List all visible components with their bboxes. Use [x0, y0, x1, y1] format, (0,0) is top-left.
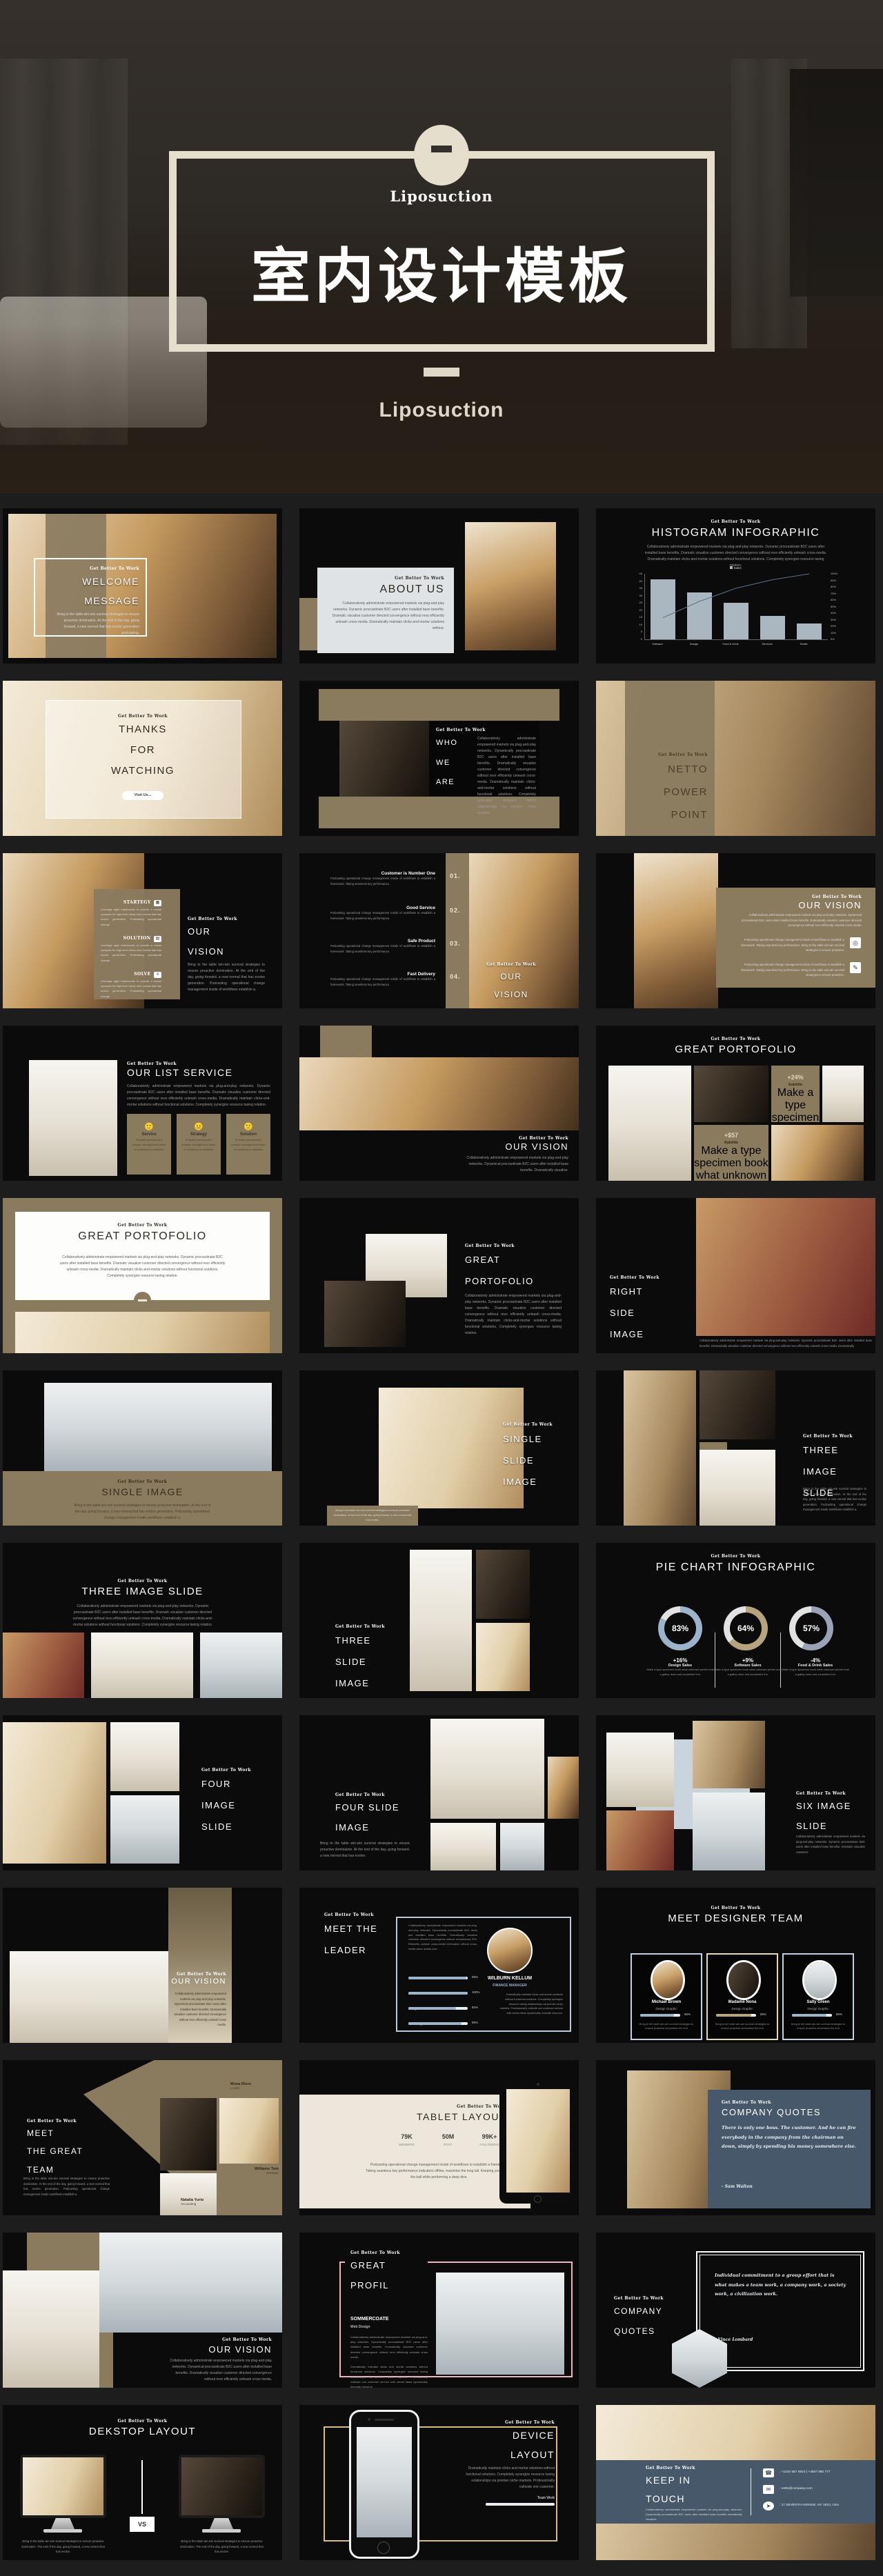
slide-dekstop-layout[interactable]: Get Better To Work DEKSTOP LAYOUT VS Bri…	[3, 2405, 282, 2560]
slide-tagline: Get Better To Work	[382, 2104, 506, 2109]
photo-modern-kitchen	[15, 1312, 270, 1353]
slide-meet-designer-team[interactable]: Get Better To Work MEET DESIGNER TEAM Mi…	[596, 1888, 875, 2043]
monitor-right	[179, 2455, 265, 2518]
monitor-right-stand	[210, 2518, 233, 2529]
slide-tagline: Get Better To Work	[44, 566, 139, 571]
slide-title: NETTO POWER POINT	[639, 758, 708, 826]
slide-keep-in-touch[interactable]: Get Better To Work KEEP IN TOUCH Collabo…	[596, 2405, 875, 2560]
slide-great-portofolio-panel[interactable]: Get Better To Work GREAT PORTOFOLIO Coll…	[3, 1198, 282, 1353]
slide-who-we-are[interactable]: Get Better To Work WHO WE ARE Collaborat…	[299, 681, 579, 836]
stat-text: Make a type specimen book what unknown p…	[781, 1668, 850, 1677]
phone-home-button	[377, 2542, 390, 2554]
x-axis-label: Food & Drink	[713, 642, 748, 646]
accent-band-top	[319, 689, 559, 721]
compass-icon: ◎	[850, 937, 861, 948]
sad-face-icon: 🙁	[226, 1122, 270, 1131]
member-name: Madame Nona	[708, 2000, 777, 2004]
y-axis-tick: 25	[634, 601, 642, 604]
slide-body: Dramatically maintain clicks and mortar …	[465, 2466, 555, 2490]
member-bar	[716, 2014, 751, 2017]
panel-row-2: Podcasting operational change management…	[734, 962, 844, 978]
item-text: Podcasting operational change management…	[330, 910, 435, 921]
y2-axis-tick: 50%	[831, 605, 842, 608]
slide-body: Collaboratively administrate empowered m…	[796, 1834, 865, 1855]
x-axis-label: Software	[639, 642, 675, 646]
slide-title: OUR VISION	[734, 900, 862, 911]
member-label-1: Mona Riero Leader	[230, 2082, 279, 2090]
photo-bookshelves	[99, 2233, 282, 2333]
slide-tagline: Get Better To Work	[3, 2419, 282, 2424]
slide-right-side-image[interactable]: Get Better To Work RIGHT SIDE IMAGE Coll…	[596, 1198, 875, 1353]
legend-swatch	[730, 566, 733, 569]
photo-chandelier-ceiling	[596, 2405, 875, 2460]
solve-icon: ≡	[154, 972, 161, 978]
y-axis-tick: 30	[634, 594, 642, 597]
skill-pct: 80%	[472, 2006, 478, 2009]
slide-body: Bring to the table win-win survival stra…	[23, 2176, 110, 2197]
stat-label: MEMBERS	[388, 2143, 426, 2146]
skill-bar	[408, 2007, 456, 2010]
slide-title: OUR LIST SERVICE	[127, 1067, 272, 1079]
slide-body: Collaboratively administrate empowered m…	[174, 1991, 226, 2028]
number-02: 02.	[450, 907, 461, 914]
card-text: Podcast operational if change management…	[127, 1137, 171, 1153]
slide-tagline: Get Better To Work	[480, 962, 542, 967]
slide-tagline: Get Better To Work	[796, 1791, 872, 1796]
slide-tagline: Get Better To Work	[201, 1768, 277, 1773]
slide-title: THREE SLIDE IMAGE	[335, 1630, 390, 1695]
slide-great-portofolio-collage[interactable]: Get Better To Work GREAT PORTOFOLIO +24%…	[596, 1026, 875, 1181]
slide-title: MEET THE GREAT TEAM	[27, 2124, 110, 2179]
slide-title: FOUR IMAGE SLIDE	[201, 1773, 264, 1838]
slide-title: TABLET LAYOUT	[382, 2111, 506, 2123]
slide-four-slide-image[interactable]: Get Better To Work FOUR SLIDE IMAGE Brin…	[299, 1715, 579, 1870]
slide-tagline: Get Better To Work	[639, 752, 708, 757]
y-axis-tick: 5	[634, 630, 642, 633]
cumulative-line	[645, 574, 828, 639]
slide-title: HISTOGRAM INFOGRAPHIC	[596, 526, 875, 539]
slide-title: MEET THE LEADER	[324, 1918, 400, 1961]
y-axis-tick: 0	[634, 637, 642, 641]
slide-three-slide-image[interactable]: Get Better To Work THREE SLIDE IMAGE	[299, 1543, 579, 1698]
photo-bedroom-window	[29, 1060, 117, 1176]
hero-ellipse-ornament	[414, 125, 469, 186]
member-role: Design Graphic	[784, 2007, 853, 2010]
slide-histogram-infographic[interactable]: Get Better To Work HISTOGRAM INFOGRAPHIC…	[596, 508, 875, 663]
slide-device-layout[interactable]: Get Better To Work DEVICE LAYOUT Dramati…	[299, 2405, 579, 2560]
photo-wood-wall	[693, 1721, 765, 1788]
member-bar	[640, 2014, 674, 2017]
photo-lounge	[694, 1066, 768, 1122]
slide-tagline: Get Better To Work	[174, 1972, 226, 1977]
mail-icon: ✉	[763, 2485, 774, 2494]
stat-value: +24%	[771, 1074, 820, 1081]
slide-tagline: Get Better To Work	[327, 576, 444, 581]
team-card-2: Madame Nona Design Graphic 88% Bring to …	[706, 1953, 778, 2040]
slide-tagline: Get Better To Work	[127, 1061, 265, 1066]
stat-value: 79K	[388, 2133, 426, 2140]
slide-tagline: Get Better To Work	[472, 2420, 555, 2425]
slide-body: Collaboratively administrate empowered m…	[741, 912, 862, 928]
photo-curtained-room	[110, 1795, 179, 1864]
pen-icon: ✎	[850, 962, 861, 973]
slide-body: Collaboratively administrate empowered m…	[477, 736, 536, 817]
profile-role: Web Design	[350, 2325, 433, 2329]
item-text: Podcasting operational change management…	[330, 876, 435, 886]
stat-box-2: +$57 Subtitle Make a type specimen book …	[694, 1125, 768, 1181]
member-text: Bring to the table win-win survival stra…	[713, 2022, 771, 2030]
slide-tagline: Get Better To Work	[596, 1906, 875, 1910]
photo-gallery	[548, 1757, 579, 1819]
slide-single-slide-image[interactable]: Get Better To Work SINGLE SLIDE IMAGE Br…	[299, 1370, 579, 1526]
slide-thumbnail-grid: Get Better To Work WELCOME MESSAGE Bring…	[0, 493, 883, 2576]
y2-axis-tick: 100%	[831, 572, 842, 575]
stat-text: Make a type specimen book what unknown p…	[646, 1668, 715, 1677]
phone-screen-photo	[357, 2427, 412, 2537]
stat-post: 50M POST	[429, 2133, 467, 2146]
slide-body: Collaboratively administrate empowered m…	[646, 2507, 742, 2522]
panel-item-startegy: STARTEGY ▦ Leverage agile frameworks to …	[101, 895, 161, 927]
slide-our-vision-panel[interactable]: Get Better To Work OUR VISION Collaborat…	[596, 853, 875, 1008]
slide-welcome-message[interactable]: Get Better To Work WELCOME MESSAGE Bring…	[3, 508, 282, 663]
team-card-3: Sally Green Design Graphic 86% Bring to …	[782, 1953, 854, 2040]
item-title: Fast Delivery	[330, 972, 435, 977]
skill-row-1: Team Work 98%	[408, 1970, 491, 1983]
photo-foyer	[634, 853, 718, 1008]
slide-meet-the-leader[interactable]: Get Better To Work MEET THE LEADER WILBU…	[299, 1888, 579, 2043]
slide-title: GREAT PROFIL	[350, 2256, 426, 2295]
slide-great-profil[interactable]: Get Better To Work GREAT PROFIL SOMMERCO…	[299, 2233, 579, 2388]
y2-axis-tick: 30%	[831, 618, 842, 621]
slide-body: Collaboratively administrate empowered m…	[700, 1338, 872, 1348]
skill-pct: 89%	[472, 2021, 478, 2024]
slide-body: Collaboratively administrate empowered m…	[458, 1155, 568, 1174]
slide-company-quotes-frame[interactable]: Get Better To Work COMPANY QUOTES Indivi…	[596, 2233, 875, 2388]
photo-glass-cabinet	[91, 1633, 193, 1698]
member-role: Leader	[230, 2086, 279, 2090]
slide-tagline: Get Better To Work	[175, 2337, 272, 2342]
slide-our-vision-shelves[interactable]: Get Better To Work OUR VISION Collaborat…	[3, 2233, 282, 2388]
photo-bathroom	[379, 1388, 524, 1508]
smiley-icon: 🙂	[127, 1122, 171, 1131]
slide-title: OUR VISION	[175, 2344, 272, 2355]
skill-pct: 98%	[472, 1975, 478, 1979]
hero-brand: Liposuction	[235, 188, 648, 205]
panel-row-1: Podcasting operational change management…	[734, 937, 844, 953]
slide-four-image[interactable]: Get Better To Work FOUR IMAGE SLIDE	[3, 1715, 282, 1870]
slide-our-vision-wide-photo[interactable]: Get Better To Work OUR VISION Collaborat…	[299, 1026, 579, 1181]
caption-right: Bring to the table win-win survival stra…	[179, 2539, 265, 2555]
slide-thanks-for-watching[interactable]: Get Better To Work THANKS FOR WATCHING V…	[3, 681, 282, 836]
slide-title: OUR VISION	[188, 922, 250, 961]
slide-title: PIE CHART INFOGRAPHIC	[596, 1561, 875, 1574]
solution-icon: ▤	[154, 936, 161, 942]
member-role: Manager	[230, 2171, 279, 2175]
photo-living-room	[339, 721, 429, 797]
slide-tagline: Get Better To Work	[3, 1479, 282, 1484]
slide-body: Bring to the table win-win survival stra…	[72, 1503, 213, 1521]
slide-title: THANKS FOR WATCHING	[46, 719, 240, 781]
donut-chart-1: 83%	[658, 1606, 702, 1650]
slide-title: SIX IMAGE SLIDE	[796, 1797, 869, 1836]
member-label-2: Williams Tom Manager	[230, 2167, 279, 2175]
item-label: STARTEGY	[123, 900, 151, 905]
slide-tagline: Get Better To Work	[614, 2296, 690, 2301]
stat-value: 50M	[429, 2133, 467, 2140]
slide-title: OUR VISION	[168, 1977, 226, 1986]
list-item-3: Safe Product Podcasting operational chan…	[330, 939, 435, 954]
photo-dark-kitchen	[476, 1550, 530, 1619]
slide-tagline: Get Better To Work	[188, 917, 270, 921]
photo-round-ceiling-lobby	[410, 1550, 472, 1691]
slide-three-image-centered[interactable]: Get Better To Work THREE IMAGE SLIDE Col…	[3, 1543, 282, 1698]
skill-label: Team Work	[472, 2496, 555, 2500]
circle-ornament	[134, 1292, 151, 1309]
photo-arch-hall	[430, 1823, 496, 1870]
photo-leather-sofa	[700, 1370, 775, 1439]
slide-tagline: Get Better To Work	[350, 2250, 426, 2255]
donut-chart-2: 64%	[724, 1606, 768, 1650]
photo-red-sofa-lounge	[696, 1198, 875, 1336]
y2-axis-tick: 10%	[831, 631, 842, 635]
slide-great-portofolio-photos[interactable]: Get Better To Work GREAT PORTOFOLIO Coll…	[299, 1198, 579, 1353]
legend-label: Sales	[734, 566, 742, 570]
item-label: SOLUTION	[123, 936, 151, 941]
slide-title: GREAT PORTOFOLIO	[465, 1249, 555, 1292]
slide-our-vision-strategy[interactable]: Get Better To Work OUR VISION Bring to t…	[3, 853, 282, 1008]
skill-bar	[408, 1977, 466, 1979]
profile-name: SOMMERCOATE	[350, 2317, 433, 2322]
slide-our-vision-numbered-list[interactable]: Customer is Number One Podcasting operat…	[299, 853, 579, 1008]
stat-column-3: -4% Food & Drink Sales Make a type speci…	[781, 1657, 850, 1677]
x-axis-label: Services	[749, 642, 785, 646]
skill-pct: 100%	[472, 1990, 480, 1994]
photo-grand-staircase	[608, 1066, 691, 1181]
photo-pink-room	[3, 1633, 84, 1698]
item-text: Podcasting operational change management…	[330, 943, 435, 954]
slide-title: SINGLE IMAGE	[3, 1486, 282, 1498]
bar-chart: 0510152025303540450%10%20%30%40%50%60%70…	[644, 574, 828, 640]
stat-column-1: +16% Design Sales Make a type specimen b…	[646, 1657, 715, 1677]
slide-three-image[interactable]: Get Better To Work THREE IMAGE SLIDE Bri…	[596, 1370, 875, 1526]
slide-title: FOUR SLIDE IMAGE	[335, 1798, 425, 1837]
member-portrait	[726, 1960, 761, 2000]
slide-tagline: Get Better To Work	[15, 1223, 270, 1228]
slide-tagline: Get Better To Work	[803, 1434, 872, 1439]
photo-sage-dining	[200, 1633, 282, 1698]
skill-bar	[486, 2503, 548, 2506]
panel-item-solution: SOLUTION ▤ Leverage agile frameworks to …	[101, 930, 161, 963]
slide-title: OUR VISION	[480, 968, 542, 1004]
slide-meet-the-great-team[interactable]: Mona Riero Leader Williams Tom Manager N…	[3, 2060, 282, 2215]
slide-title: GREAT PORTOFOLIO	[596, 1044, 875, 1056]
panel-item-solve: SOLVE ≡ Leverage agile frameworks to pro…	[101, 966, 161, 999]
donut-chart-3: 57%	[789, 1606, 833, 1650]
skill-row-2: Leaders Team 100%	[408, 1986, 491, 1998]
slide-title: DEVICE LAYOUT	[472, 2426, 555, 2464]
slide-title: ABOUT US	[327, 583, 444, 596]
solution-card: 🙁 Solution Podcast operational if change…	[226, 1114, 270, 1175]
photo-cove-ceiling	[476, 1623, 530, 1691]
photo-sage-dining-2	[693, 1793, 765, 1870]
slide-tagline: Get Better To Work	[437, 1136, 568, 1141]
member-role: Design Graphic	[708, 2007, 777, 2010]
quote-text: There is only one boss. The customer. An…	[722, 2124, 857, 2152]
donut-value: 83%	[664, 1613, 696, 1644]
photo-dining	[822, 1066, 864, 1122]
monitor-left	[20, 2455, 106, 2518]
quote-author: - Sam Walton	[722, 2183, 857, 2192]
slide-tagline: Get Better To Work	[465, 1244, 562, 1248]
slide-single-image[interactable]: Get Better To Work SINGLE IMAGE Bring to…	[3, 1370, 282, 1526]
skill-bar	[408, 2022, 462, 2025]
contact-email: : netto@company.com	[780, 2487, 869, 2490]
photo-bay-window	[44, 1383, 272, 1471]
tablet-camera	[537, 2083, 539, 2086]
hero-photo-tv-wall	[790, 69, 883, 297]
tablet-home-button	[534, 2195, 542, 2203]
skill-row-4: Marketing 89%	[408, 2016, 491, 2028]
item-title: Safe Product	[330, 939, 435, 943]
member-portrait	[651, 1960, 685, 2000]
contact-divider	[751, 2468, 751, 2515]
slide-body: Collaboratively administrate empowered m…	[644, 544, 827, 569]
quote-text: Individual commitment to a group effort …	[715, 2271, 847, 2299]
slide-body: Podcasting operational change management…	[365, 2162, 513, 2181]
slide-tagline: Get Better To Work	[596, 519, 875, 524]
y-axis-tick: 45	[634, 572, 642, 575]
slide-body: Bring to the table win-win survival stra…	[188, 962, 265, 993]
list-item-1: Customer is Number One Podcasting operat…	[330, 871, 435, 886]
member-text: Bring to the table win-win survival stra…	[637, 2022, 695, 2030]
stat-column-2: +9% Software Sales Make a type specimen …	[713, 1657, 782, 1677]
y2-axis-tick: 40%	[831, 611, 842, 615]
phone-camera	[368, 2418, 370, 2421]
member-label-3: Natalia Yurio Accounting	[181, 2198, 229, 2206]
photo-display-cabinets	[299, 1057, 579, 1130]
member-name: Sally Green	[784, 2000, 853, 2004]
visit-us-button: Visit Us...	[122, 791, 163, 800]
member-role: Design Graphic	[632, 2007, 701, 2010]
photo-sage-hallway	[436, 2273, 564, 2375]
slide-body: Collaboratively administrate empowered m…	[330, 601, 444, 632]
slide-body: Collaboratively administrate empowered m…	[350, 2335, 428, 2388]
slide-tablet-layout[interactable]: Get Better To Work TABLET LAYOUT 79K MEM…	[299, 2060, 579, 2215]
phone-speaker	[375, 2419, 394, 2421]
phone-icon: ☎	[763, 2468, 774, 2477]
slide-title: WELCOME MESSAGE	[44, 572, 139, 610]
slide-title: RIGHT SIDE IMAGE	[610, 1281, 679, 1346]
item-title: Good Service	[330, 906, 435, 910]
slide-our-list-service[interactable]: Get Better To Work OUR LIST SERVICE Coll…	[3, 1026, 282, 1181]
item-text: Leverage agile frameworks to provide a r…	[101, 907, 161, 927]
number-04: 04.	[450, 973, 461, 980]
slide-about-us[interactable]: Get Better To Work ABOUT US Collaborativ…	[299, 508, 579, 663]
slide-title: WHO WE ARE	[436, 733, 477, 792]
x-axis-label: Design	[676, 642, 712, 646]
slide-title: THREE IMAGE SLIDE	[3, 1586, 282, 1598]
y2-axis-tick: 20%	[831, 624, 842, 628]
slide-tagline: Get Better To Work	[646, 2466, 742, 2470]
x-axis-label: Textile	[786, 642, 822, 646]
caption-left: Bring to the table win-win survival stra…	[20, 2539, 106, 2555]
slide-company-quotes-photo[interactable]: Get Better To Work COMPANY QUOTES There …	[596, 2060, 875, 2215]
skill-row-3: Design 80%	[408, 2001, 491, 2013]
hero-subtitle: Liposuction	[235, 399, 648, 422]
stat-box-1: +24% Subtitle Make a type specimen book …	[771, 1066, 820, 1122]
contact-address: : 17 SEVENTH AVENUE, NY 1910, USA	[780, 2504, 873, 2507]
y-axis-tick: 35	[634, 586, 642, 590]
caption-text: Bring to the table win-win survival stra…	[327, 1506, 418, 1525]
photo-lattice-wall	[160, 2098, 217, 2170]
slide-tagline: Get Better To Work	[610, 1275, 693, 1280]
member-pct: 86%	[836, 2013, 842, 2016]
y-axis-tick: 40	[634, 579, 642, 583]
photo-staircase	[700, 1450, 775, 1526]
stat-delta: +16%	[646, 1657, 715, 1664]
divider-line	[141, 2460, 143, 2514]
monitor-left-stand	[51, 2518, 75, 2529]
slide-tagline: Get Better To Work	[335, 1624, 404, 1629]
tablet-device	[499, 2079, 577, 2204]
item-text: Leverage agile frameworks to provide a r…	[101, 979, 161, 999]
leader-body: Collaboratively administrate empowered m…	[408, 1924, 477, 1952]
stat-text: Make a type specimen book what unknown p…	[713, 1668, 782, 1677]
vs-badge: VS	[130, 2517, 155, 2532]
stat-members: 79K MEMBERS	[388, 2133, 426, 2146]
y2-axis-tick: 80%	[831, 585, 842, 588]
caption-box: Bring to the table win-win survival stra…	[327, 1506, 418, 1526]
photo-fireplace-room	[430, 1719, 544, 1819]
slide-six-image[interactable]: Get Better To Work SIX IMAGE SLIDE Colla…	[596, 1715, 875, 1870]
photo-bath	[500, 1823, 544, 1870]
y2-axis-tick: 0%	[831, 637, 842, 641]
slide-title: GREAT PORTOFOLIO	[15, 1230, 270, 1243]
photo-warm-hallway	[219, 2098, 279, 2164]
slide-our-vision-gradient[interactable]: Get Better To Work OUR VISION Collaborat…	[3, 1888, 282, 2043]
photo-dining-room-2	[596, 2524, 875, 2560]
slide-body: Collaboratively administrate empowered m…	[70, 1604, 215, 1628]
leader-body-2: Dramatically maintain clicks and mortar …	[499, 1993, 563, 2016]
y-axis-tick: 20	[634, 608, 642, 612]
slide-body: Collaboratively administrate empowered m…	[127, 1084, 270, 1108]
photo-white-kitchen	[110, 1722, 179, 1791]
slide-title: DEKSTOP LAYOUT	[3, 2426, 282, 2438]
number-03: 03.	[450, 940, 461, 947]
y2-axis-tick: 70%	[831, 592, 842, 595]
slide-pie-chart-infographic[interactable]: Get Better To Work PIE CHART INFOGRAPHIC…	[596, 1543, 875, 1698]
slide-tagline: Get Better To Work	[27, 2119, 110, 2124]
photo-armchair	[606, 1733, 674, 1807]
monitor-left-base	[43, 2529, 82, 2533]
member-portrait	[802, 1960, 837, 2000]
slide-tagline: Get Better To Work	[46, 714, 240, 719]
stat-label: POST	[429, 2143, 467, 2146]
photo-appliance	[324, 1281, 406, 1347]
member-bar	[792, 2014, 826, 2017]
member-name: Michael Brown	[632, 2000, 701, 2004]
slide-tagline: Get Better To Work	[324, 1913, 400, 1917]
list-item-2: Good Service Podcasting operational chan…	[330, 906, 435, 921]
slide-title: KEEP IN TOUCH	[646, 2471, 742, 2508]
slide-title: MEET DESIGNER TEAM	[596, 1913, 875, 1925]
slide-tagline: Get Better To Work	[436, 728, 505, 732]
photo-dining-table	[771, 1125, 864, 1181]
slide-netto-power-point[interactable]: Get Better To Work NETTO POWER POINT	[596, 681, 875, 836]
slide-body: Bring to the table win-win survival stra…	[52, 612, 139, 637]
slide-tagline: Get Better To Work	[722, 2100, 860, 2105]
slide-body: Collaboratively administrate empowered m…	[465, 1293, 562, 1337]
